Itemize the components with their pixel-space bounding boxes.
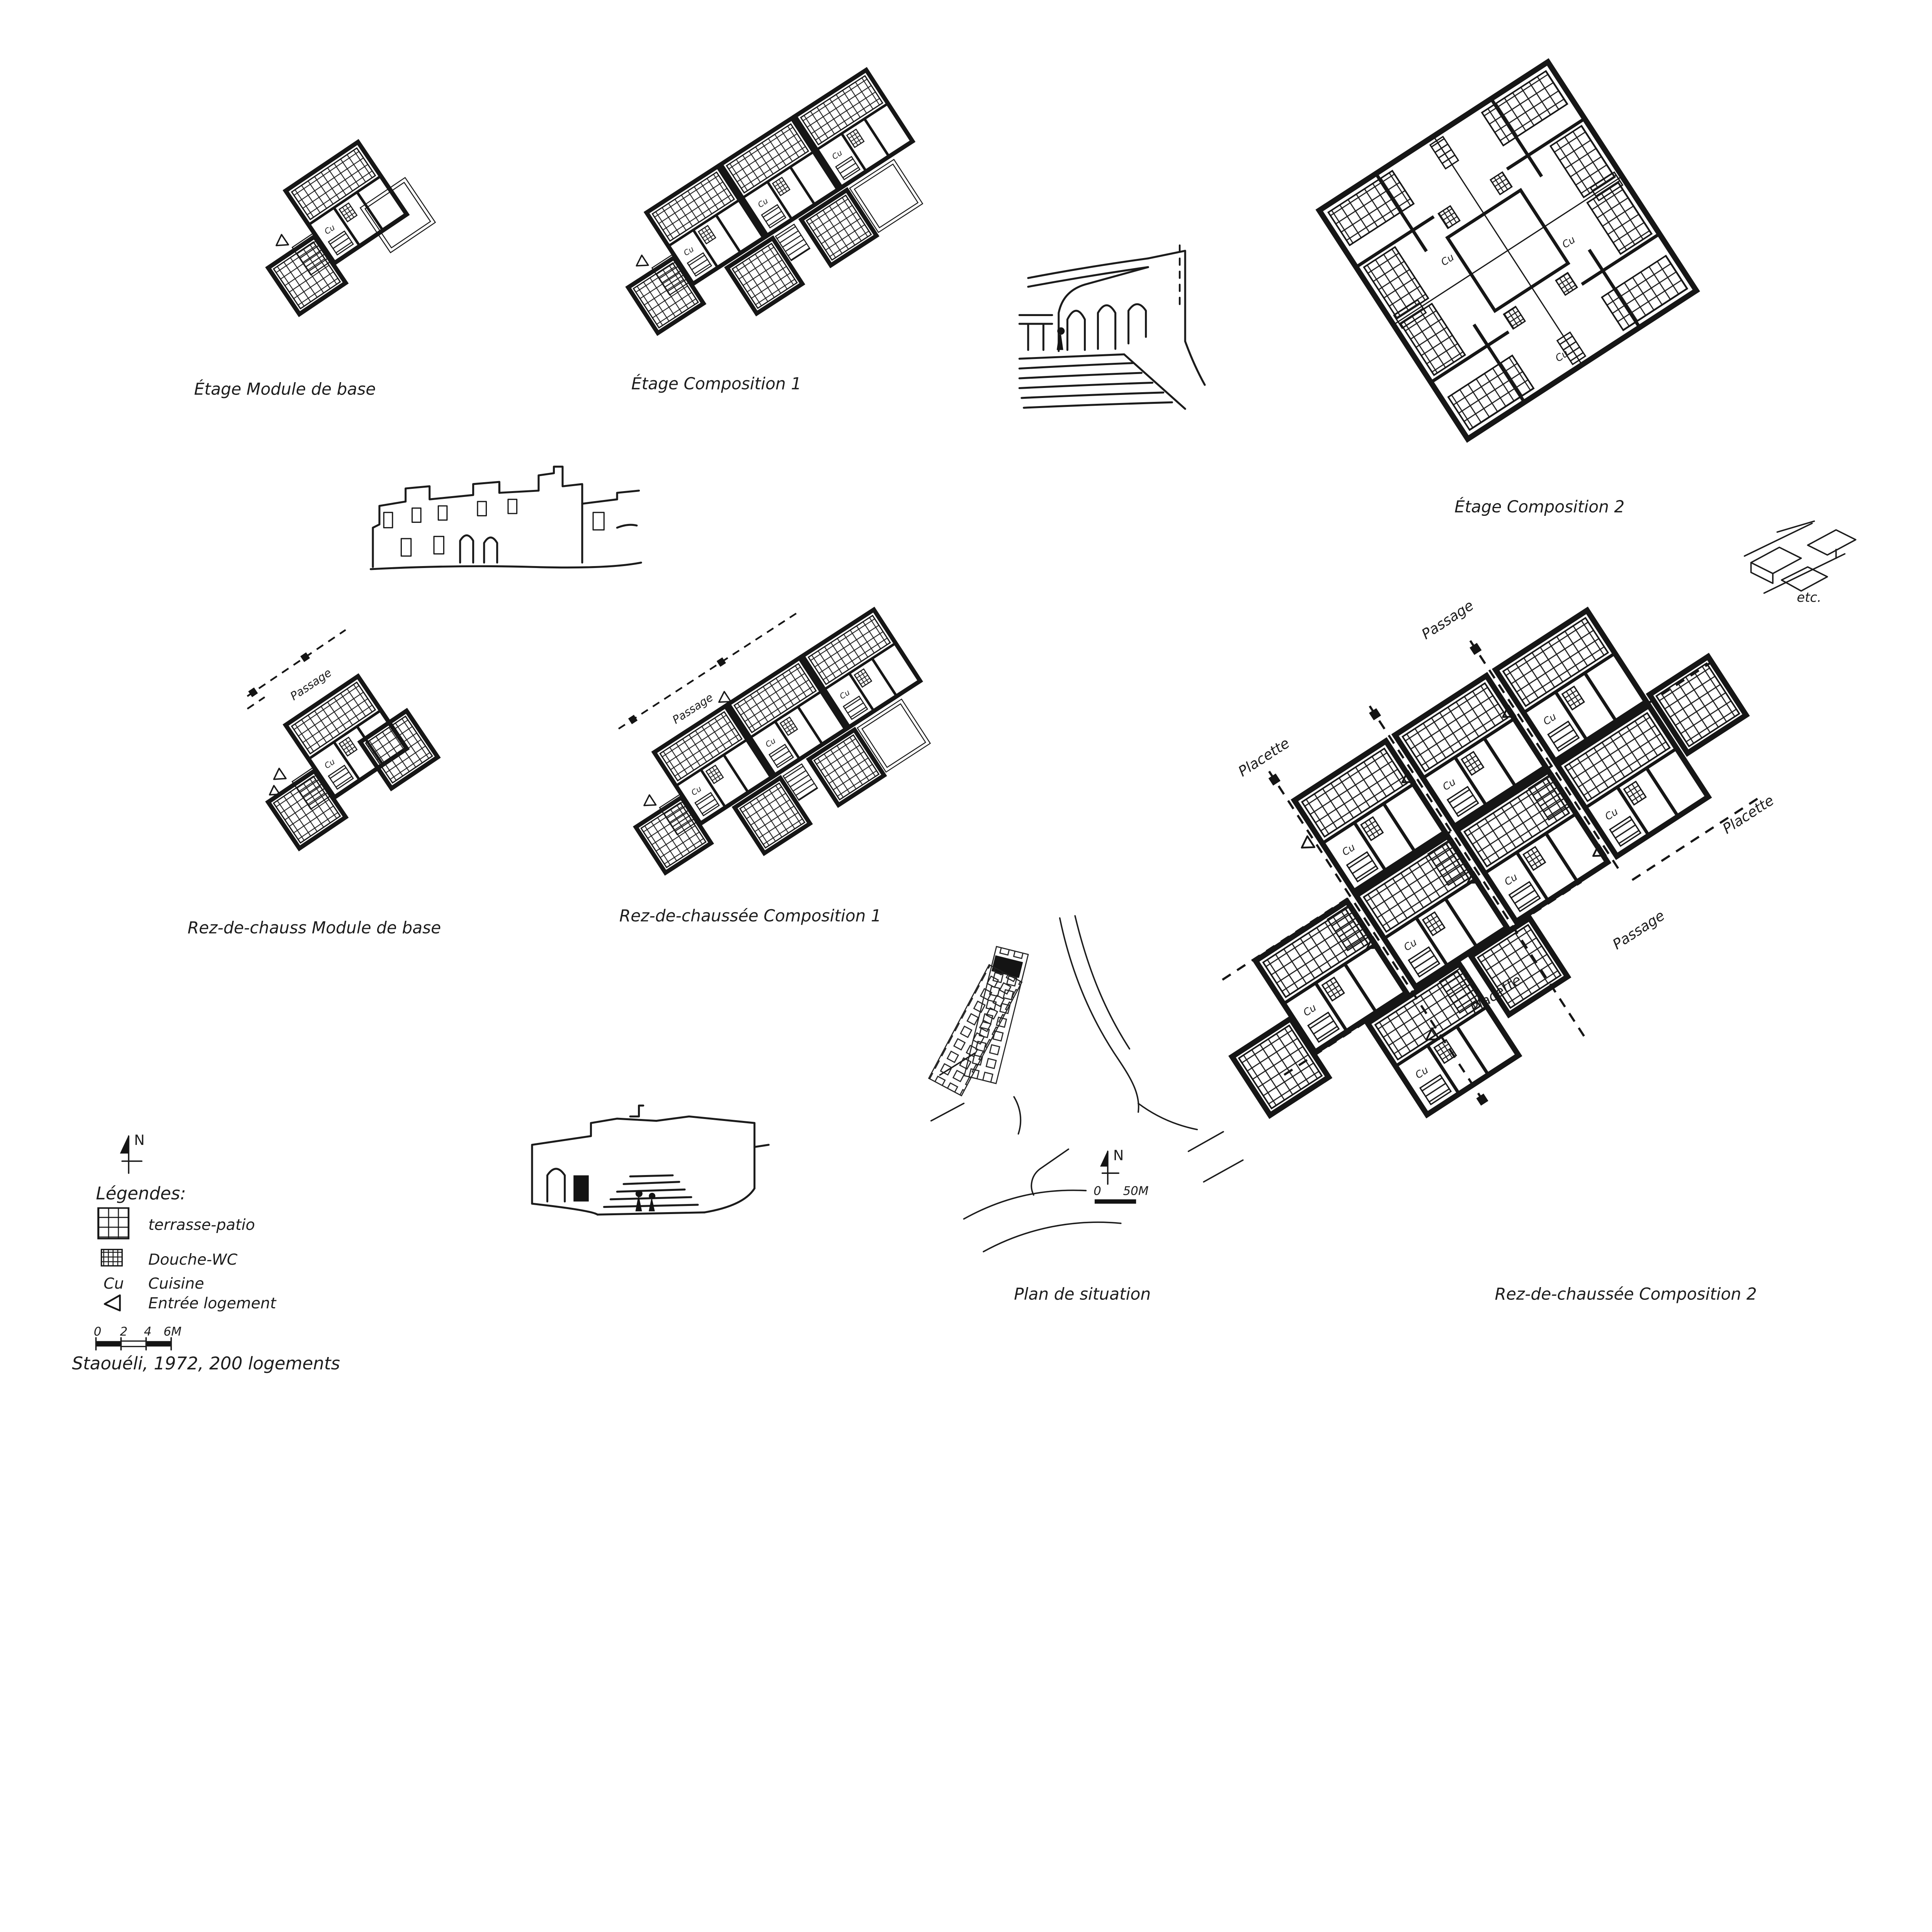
caption-etage-comp2: Étage Composition 2 <box>1454 497 1624 516</box>
passage-label: Passage <box>670 690 715 726</box>
svg-text:0: 0 <box>94 1325 102 1339</box>
caption-site: Plan de situation <box>1014 1284 1151 1303</box>
legend-item-label: Douche-WC <box>148 1251 238 1269</box>
plan-rdc-composition-2: Placette Passage Placette Passage Placet… <box>1092 505 1847 1207</box>
sketch-courtyard-steps <box>532 1105 769 1214</box>
svg-text:6M: 6M <box>163 1325 182 1339</box>
legend-item-cuisine: Cu Cuisine <box>104 1275 204 1293</box>
terrace-annex <box>360 711 438 789</box>
housing-module <box>803 610 920 727</box>
architectural-drawing-canvas: Cu Étage Module de base Étage <box>0 0 1932 1380</box>
plan-etage-composition-2: Cu Cu Cu <box>1319 62 1696 439</box>
entry-triangle-icon <box>1298 836 1315 853</box>
sketch-village-skyline <box>371 467 641 569</box>
plan-rdc-composition-1: Passage <box>584 574 952 904</box>
caption-rdc-comp1: Rez-de-chaussée Composition 1 <box>619 906 881 925</box>
stair-run <box>783 764 818 800</box>
legend-item-entree-logement: Entrée logement <box>105 1294 277 1312</box>
north-label: N <box>134 1132 145 1148</box>
legend-item-label: Entrée logement <box>148 1294 277 1312</box>
entry-triangle-icon <box>273 235 288 250</box>
svg-text:0: 0 <box>1094 1184 1101 1198</box>
legend-item-label: terrasse-patio <box>148 1216 255 1234</box>
caption-rdc-module: Rez-de-chauss Module de base <box>187 918 441 937</box>
entry-triangle-icon <box>105 1295 120 1311</box>
dense-grid-swatch-icon <box>101 1250 122 1266</box>
housing-module <box>795 70 912 187</box>
cuisine-label: Cu <box>1560 233 1577 250</box>
caption-etage-module: Étage Module de base <box>194 379 376 398</box>
site-plan: N 0 50M <box>929 916 1243 1252</box>
north-arrow-legend: N <box>120 1132 145 1173</box>
legend-item-douche-wc: Douche-WC <box>101 1250 238 1269</box>
legend-item-terrasse-patio: terrasse-patio <box>98 1208 255 1238</box>
placette-label: Placette <box>1235 735 1293 780</box>
legend: N Légendes: terrasse-patio Douche-WC Cu … <box>94 1132 277 1350</box>
cuisine-label: Cu <box>1439 251 1456 268</box>
north-label: N <box>1113 1147 1124 1163</box>
cuisine-symbol: Cu <box>104 1275 124 1293</box>
legend-item-label: Cuisine <box>148 1275 204 1293</box>
plan-etage-module-de-base <box>238 131 435 314</box>
svg-text:50M: 50M <box>1123 1184 1148 1198</box>
plan-etage-composition-1 <box>599 70 945 364</box>
caption-etage-comp1: Étage Composition 1 <box>631 374 801 393</box>
entry-triangle-icon <box>641 795 656 810</box>
caption-rdc-comp2: Rez-de-chaussée Composition 2 <box>1495 1284 1757 1303</box>
placette-label: Placette <box>1719 792 1777 837</box>
caption-etc: etc. <box>1797 590 1821 605</box>
north-arrow-site: N <box>1100 1147 1124 1184</box>
svg-text:4: 4 <box>144 1325 151 1339</box>
svg-text:2: 2 <box>120 1325 128 1339</box>
legend-heading: Légendes: <box>96 1183 186 1204</box>
plan-rdc-module-de-base: Passage <box>211 624 438 850</box>
passage-label: Passage <box>1610 907 1668 952</box>
entry-triangle-icon <box>633 255 648 271</box>
sketch-arcade-stairs <box>1019 245 1205 409</box>
sketch-axonometric-etc <box>1745 521 1856 593</box>
large-grid-swatch-icon <box>98 1208 129 1238</box>
sheet-title: Staouéli, 1972, 200 logements <box>72 1353 340 1374</box>
legend-scale-bar: 0 2 4 6M <box>94 1325 182 1350</box>
site-scale-bar: 0 50M <box>1094 1184 1148 1204</box>
stair-run <box>776 224 810 260</box>
drawing-sheet: Cu Étage Module de base Étage <box>0 0 1932 1380</box>
entry-triangle-icon <box>270 769 286 784</box>
passage-label: Passage <box>1418 597 1476 643</box>
